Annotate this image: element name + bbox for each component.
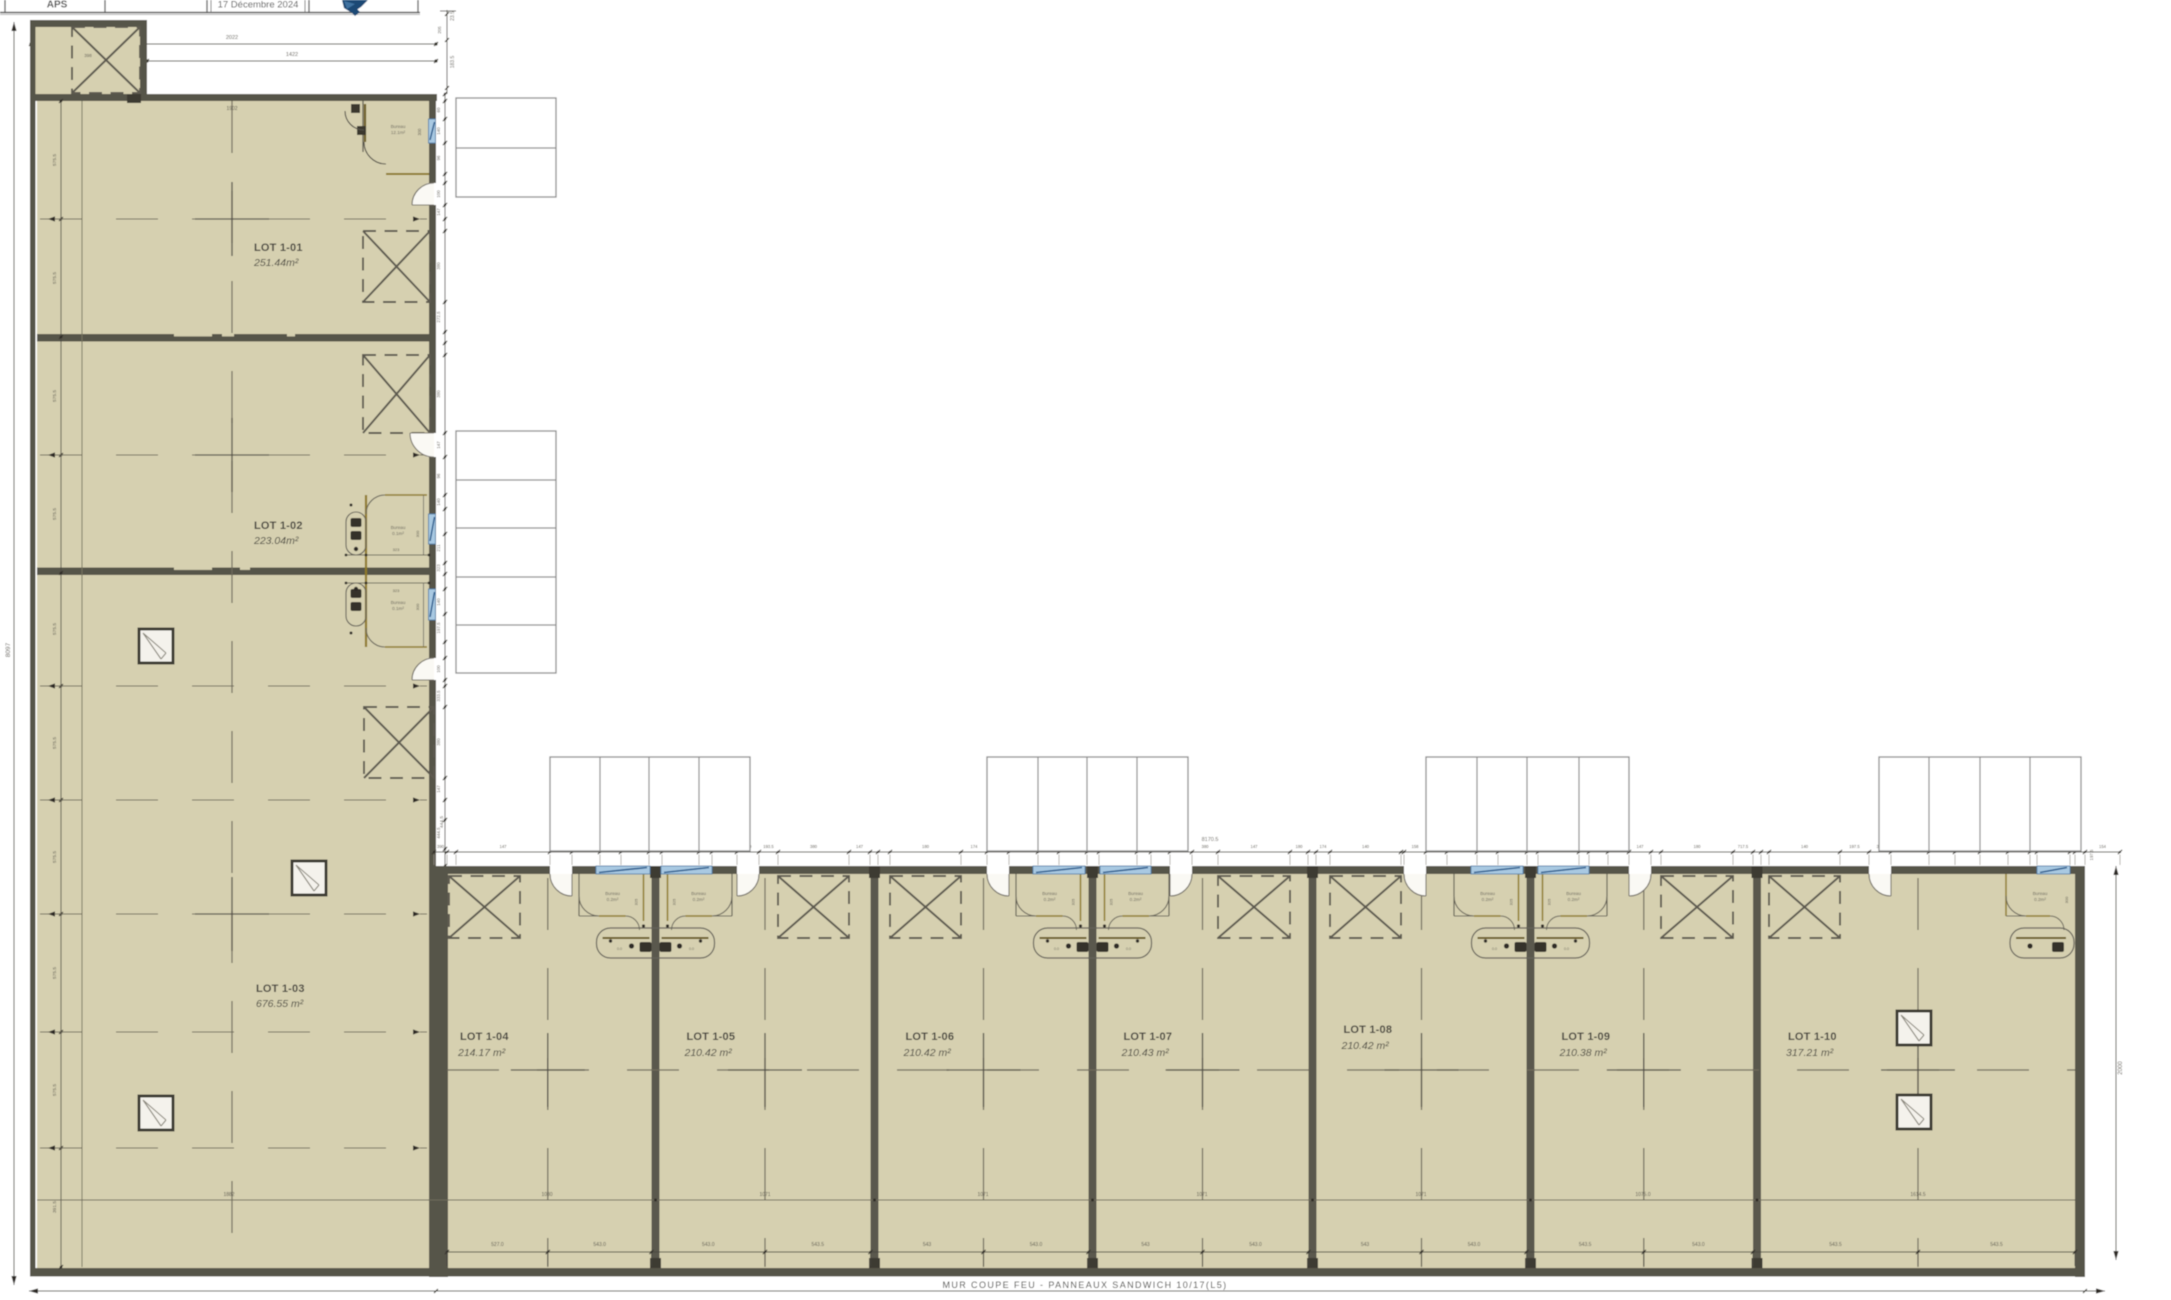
svg-text:223.04m²: 223.04m² (253, 535, 299, 547)
svg-text:197.5: 197.5 (1849, 844, 1860, 849)
svg-text:LOT 1-03: LOT 1-03 (256, 983, 305, 995)
svg-text:0.2m²: 0.2m² (1482, 897, 1494, 902)
svg-text:Bureau: Bureau (691, 891, 706, 896)
svg-text:300: 300 (417, 128, 422, 136)
svg-text:575.5: 575.5 (52, 623, 58, 635)
svg-text:174: 174 (971, 844, 979, 849)
svg-text:214.17 m²: 214.17 m² (457, 1047, 506, 1059)
svg-text:0.2m²: 0.2m² (2034, 897, 2046, 902)
svg-text:LOT 1-08: LOT 1-08 (1344, 1024, 1393, 1036)
svg-text:575.5: 575.5 (52, 390, 58, 402)
svg-text:543.5: 543.5 (1990, 1242, 2003, 1248)
svg-text:575.5: 575.5 (52, 272, 58, 284)
svg-text:1030: 1030 (541, 1192, 552, 1198)
svg-text:96: 96 (436, 155, 441, 161)
svg-text:147: 147 (436, 208, 441, 216)
svg-text:158: 158 (1412, 844, 1420, 849)
svg-text:0.2m²: 0.2m² (1044, 897, 1056, 902)
svg-text:0.1m²: 0.1m² (392, 531, 404, 536)
svg-text:380: 380 (436, 738, 441, 746)
svg-text:380: 380 (1202, 844, 1210, 849)
svg-text:575.5: 575.5 (52, 851, 58, 863)
svg-text:140: 140 (436, 127, 441, 135)
svg-text:12.1m²: 12.1m² (391, 130, 406, 135)
svg-text:543.0: 543.0 (1692, 1242, 1705, 1248)
svg-text:8097: 8097 (5, 642, 12, 657)
svg-text:96: 96 (436, 473, 441, 479)
svg-text:543.5: 543.5 (811, 1242, 824, 1248)
svg-text:Bureau: Bureau (1042, 891, 1057, 896)
svg-text:0.2m²: 0.2m² (607, 897, 619, 902)
svg-text:140: 140 (1362, 844, 1370, 849)
svg-text:Bureau: Bureau (1128, 891, 1143, 896)
svg-text:Bureau: Bureau (1480, 891, 1495, 896)
svg-text:1071: 1071 (1196, 1192, 1207, 1198)
svg-text:543: 543 (1141, 1242, 1150, 1248)
svg-text:543.5: 543.5 (1829, 1242, 1842, 1248)
svg-text:317.21 m²: 317.21 m² (1786, 1047, 1834, 1059)
svg-text:147: 147 (500, 844, 508, 849)
svg-text:325: 325 (1509, 898, 1514, 905)
svg-text:325: 325 (1109, 898, 1114, 905)
svg-text:1422: 1422 (286, 52, 298, 58)
svg-text:0.0: 0.0 (1054, 947, 1059, 951)
svg-text:LOT 1-10: LOT 1-10 (1788, 1031, 1837, 1043)
svg-text:MUR COUPE FEU - PANNEAUX SANDW: MUR COUPE FEU - PANNEAUX SANDWICH 10/17(… (942, 1280, 1227, 1290)
svg-text:193.5: 193.5 (763, 844, 774, 849)
svg-text:543: 543 (923, 1242, 932, 1248)
svg-text:323: 323 (393, 547, 400, 552)
svg-text:Bureau: Bureau (1566, 891, 1581, 896)
svg-text:LOT 1-05: LOT 1-05 (687, 1031, 736, 1043)
svg-text:8170.5: 8170.5 (1202, 837, 1219, 843)
svg-text:147: 147 (436, 441, 441, 449)
svg-text:444.5: 444.5 (439, 816, 445, 828)
svg-text:2022: 2022 (226, 35, 238, 41)
svg-text:Bureau: Bureau (2033, 891, 2048, 896)
svg-text:140: 140 (1801, 844, 1809, 849)
svg-text:140: 140 (436, 598, 441, 606)
svg-text:717.5: 717.5 (1738, 844, 1749, 849)
svg-text:543.0: 543.0 (1468, 1242, 1481, 1248)
svg-text:325: 325 (634, 898, 639, 905)
svg-text:147: 147 (1637, 844, 1645, 849)
svg-text:543.0: 543.0 (702, 1242, 715, 1248)
svg-text:210.43 m²: 210.43 m² (1121, 1047, 1170, 1059)
svg-text:543.0: 543.0 (1030, 1242, 1043, 1248)
svg-text:0.1m²: 0.1m² (392, 606, 404, 611)
svg-text:211: 211 (436, 544, 441, 552)
svg-text:390: 390 (437, 844, 445, 849)
svg-text:Bureau: Bureau (391, 124, 406, 129)
svg-text:LOT 1-04: LOT 1-04 (460, 1031, 509, 1043)
svg-text:0.2m²: 0.2m² (693, 897, 705, 902)
svg-text:575.5: 575.5 (52, 1084, 58, 1096)
svg-text:1614.5: 1614.5 (1910, 1192, 1926, 1198)
svg-text:380: 380 (436, 262, 441, 270)
svg-text:272.5: 272.5 (436, 311, 441, 323)
svg-text:0.0: 0.0 (689, 947, 694, 951)
svg-text:0.0: 0.0 (617, 947, 622, 951)
svg-text:0.2m²: 0.2m² (1568, 897, 1580, 902)
svg-text:527.0: 527.0 (491, 1242, 504, 1248)
svg-text:251.44m²: 251.44m² (253, 257, 299, 269)
svg-text:0.0: 0.0 (1564, 947, 1569, 951)
svg-text:323: 323 (393, 588, 400, 593)
svg-text:23.5: 23.5 (450, 11, 456, 21)
svg-text:154: 154 (2099, 844, 2107, 849)
svg-text:210.42 m²: 210.42 m² (1341, 1040, 1390, 1052)
svg-text:1075.0: 1075.0 (1635, 1192, 1651, 1198)
svg-text:575.5: 575.5 (52, 967, 58, 979)
svg-text:333.5: 333.5 (436, 690, 441, 702)
svg-text:183.5: 183.5 (450, 56, 456, 69)
svg-text:300: 300 (415, 603, 420, 610)
svg-text:380: 380 (810, 844, 818, 849)
svg-text:LOT 1-07: LOT 1-07 (1124, 1031, 1173, 1043)
svg-text:325: 325 (672, 898, 677, 905)
svg-text:2000: 2000 (2118, 1061, 2124, 1075)
svg-text:LOT 1-06: LOT 1-06 (906, 1031, 955, 1043)
svg-text:17 Décembre 2024: 17 Décembre 2024 (218, 0, 299, 11)
svg-text:147: 147 (436, 785, 441, 793)
svg-text:210.42 m²: 210.42 m² (903, 1047, 952, 1059)
svg-text:LOT 1-02: LOT 1-02 (254, 520, 303, 532)
svg-text:325: 325 (1547, 898, 1552, 905)
svg-text:100: 100 (436, 665, 441, 673)
svg-text:380: 380 (436, 390, 441, 398)
svg-text:398: 398 (84, 53, 92, 58)
svg-text:676.55 m²: 676.55 m² (256, 998, 304, 1010)
svg-text:Bureau: Bureau (605, 891, 620, 896)
svg-text:LOT 1-09: LOT 1-09 (1562, 1031, 1611, 1043)
svg-text:543.5: 543.5 (1579, 1242, 1592, 1248)
svg-text:325: 325 (1071, 898, 1076, 905)
svg-text:300: 300 (415, 530, 420, 537)
svg-text:100: 100 (436, 190, 441, 198)
svg-text:180: 180 (1694, 844, 1702, 849)
svg-text:300: 300 (2064, 896, 2069, 903)
svg-text:180: 180 (922, 844, 930, 849)
svg-text:543: 543 (1361, 1242, 1370, 1248)
svg-text:APS: APS (47, 0, 68, 11)
svg-text:1071: 1071 (977, 1192, 988, 1198)
svg-text:1902: 1902 (226, 106, 237, 112)
svg-text:210.38 m²: 210.38 m² (1559, 1047, 1608, 1059)
svg-text:543.0: 543.0 (1249, 1242, 1262, 1248)
svg-text:LOT 1-01: LOT 1-01 (254, 242, 303, 254)
svg-text:147: 147 (1251, 844, 1259, 849)
svg-text:180: 180 (1296, 844, 1304, 849)
svg-text:197.5: 197.5 (436, 622, 441, 634)
svg-text:140: 140 (436, 498, 441, 506)
svg-text:197.5: 197.5 (2089, 849, 2094, 861)
svg-text:174: 174 (1320, 844, 1328, 849)
svg-text:210.42 m²: 210.42 m² (684, 1047, 733, 1059)
svg-text:575.5: 575.5 (52, 737, 58, 749)
svg-text:575.5: 575.5 (52, 508, 58, 520)
svg-text:1071: 1071 (759, 1192, 770, 1198)
svg-text:575.5: 575.5 (52, 154, 58, 166)
svg-text:0.2m²: 0.2m² (1130, 897, 1142, 902)
svg-text:0.0: 0.0 (1126, 947, 1131, 951)
svg-text:543.0: 543.0 (593, 1242, 606, 1248)
svg-text:323: 323 (436, 564, 441, 572)
svg-text:147: 147 (856, 844, 864, 849)
svg-text:60: 60 (436, 107, 441, 113)
svg-text:Bureau: Bureau (391, 600, 406, 605)
svg-text:0.0: 0.0 (1492, 947, 1497, 951)
svg-text:1071: 1071 (1415, 1192, 1426, 1198)
svg-text:Bureau: Bureau (391, 525, 406, 530)
svg-text:391.5: 391.5 (52, 1201, 58, 1213)
svg-text:1882: 1882 (223, 1192, 234, 1198)
svg-text:205: 205 (437, 26, 442, 34)
